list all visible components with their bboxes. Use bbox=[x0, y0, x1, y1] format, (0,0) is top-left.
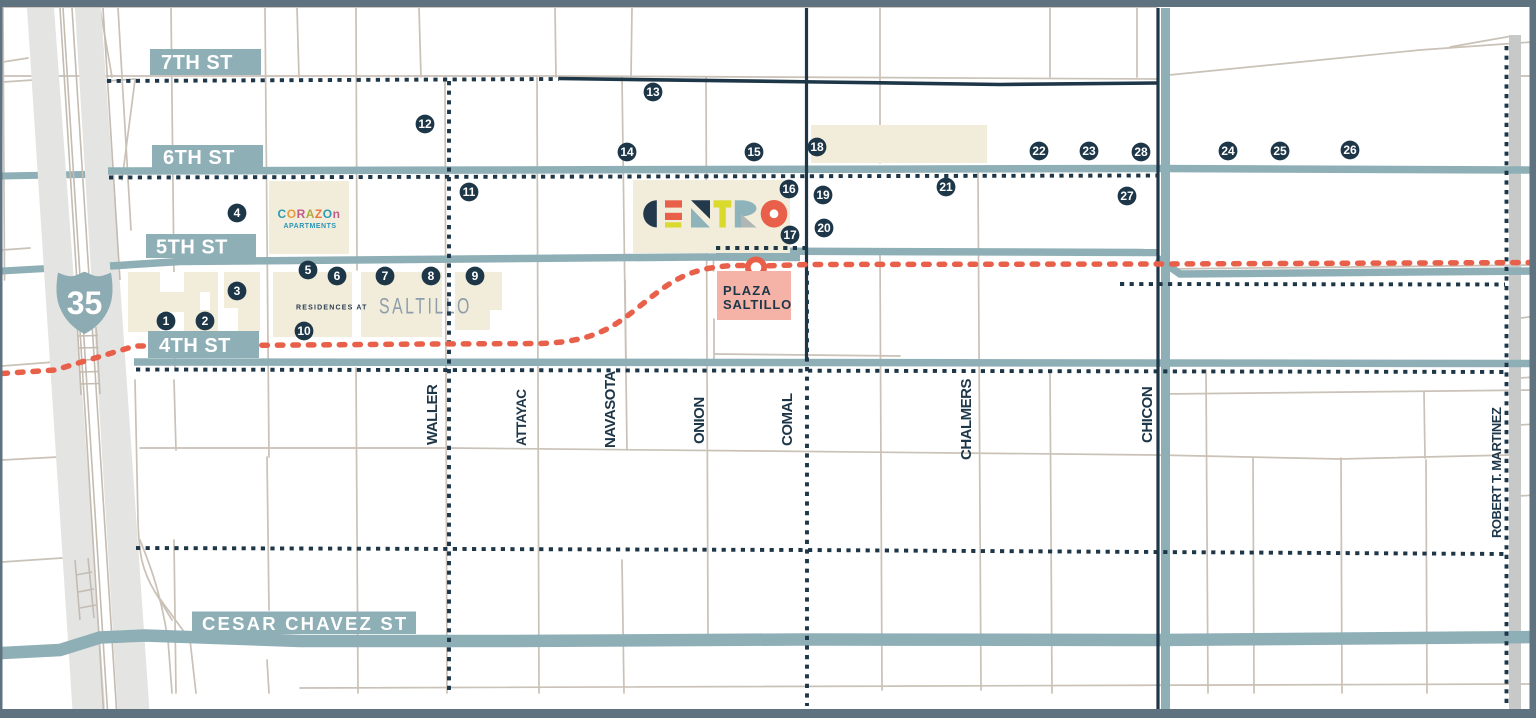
svg-text:23: 23 bbox=[1082, 144, 1096, 158]
svg-text:3: 3 bbox=[234, 284, 241, 298]
svg-text:8: 8 bbox=[428, 269, 435, 283]
svg-text:CORAZOn: CORAZOn bbox=[278, 207, 341, 221]
svg-text:21: 21 bbox=[939, 180, 953, 194]
svg-text:28: 28 bbox=[1134, 145, 1148, 159]
svg-text:APARTMENTS: APARTMENTS bbox=[283, 223, 336, 230]
svg-text:CHALMERS: CHALMERS bbox=[958, 379, 975, 460]
svg-text:ONION: ONION bbox=[691, 397, 708, 444]
svg-text:19: 19 bbox=[816, 188, 830, 202]
svg-text:20: 20 bbox=[817, 221, 831, 235]
svg-text:11: 11 bbox=[463, 185, 476, 199]
svg-text:5: 5 bbox=[305, 263, 312, 277]
svg-text:WALLER: WALLER bbox=[424, 384, 441, 445]
svg-text:4TH ST: 4TH ST bbox=[159, 335, 231, 357]
svg-text:ROBERT T. MARTINEZ: ROBERT T. MARTINEZ bbox=[1489, 407, 1504, 538]
svg-text:24: 24 bbox=[1221, 144, 1235, 158]
svg-text:7: 7 bbox=[382, 269, 389, 283]
svg-text:CHICON: CHICON bbox=[1139, 387, 1156, 443]
svg-text:26: 26 bbox=[1343, 143, 1357, 157]
svg-text:COMAL: COMAL bbox=[779, 393, 796, 446]
svg-text:SALTILLO: SALTILLO bbox=[723, 297, 792, 312]
svg-text:6: 6 bbox=[334, 269, 341, 283]
svg-text:12: 12 bbox=[418, 117, 432, 131]
svg-text:22: 22 bbox=[1032, 144, 1046, 158]
svg-text:ATTAYAC: ATTAYAC bbox=[514, 389, 529, 446]
svg-text:17: 17 bbox=[783, 228, 797, 242]
svg-text:15: 15 bbox=[747, 145, 761, 159]
svg-text:RESIDENCES AT: RESIDENCES AT bbox=[296, 305, 368, 312]
svg-text:NAVASOTA: NAVASOTA bbox=[602, 371, 619, 448]
svg-text:1: 1 bbox=[163, 314, 170, 328]
svg-text:35: 35 bbox=[67, 285, 103, 321]
svg-text:27: 27 bbox=[1120, 189, 1134, 203]
svg-text:18: 18 bbox=[810, 140, 824, 154]
svg-text:7TH ST: 7TH ST bbox=[161, 52, 233, 74]
svg-text:6TH ST: 6TH ST bbox=[163, 147, 235, 169]
svg-text:14: 14 bbox=[620, 145, 634, 159]
svg-text:5TH ST: 5TH ST bbox=[156, 237, 228, 259]
svg-text:9: 9 bbox=[472, 269, 479, 283]
svg-text:25: 25 bbox=[1273, 144, 1287, 158]
svg-text:SALTILLO: SALTILLO bbox=[379, 295, 472, 319]
svg-text:CESAR CHAVEZ ST: CESAR CHAVEZ ST bbox=[202, 613, 408, 634]
svg-text:4: 4 bbox=[234, 206, 241, 220]
svg-text:2: 2 bbox=[202, 314, 209, 328]
svg-text:13: 13 bbox=[646, 85, 660, 99]
svg-text:10: 10 bbox=[297, 324, 311, 338]
svg-text:PLAZA: PLAZA bbox=[723, 283, 772, 298]
svg-text:16: 16 bbox=[782, 182, 796, 196]
